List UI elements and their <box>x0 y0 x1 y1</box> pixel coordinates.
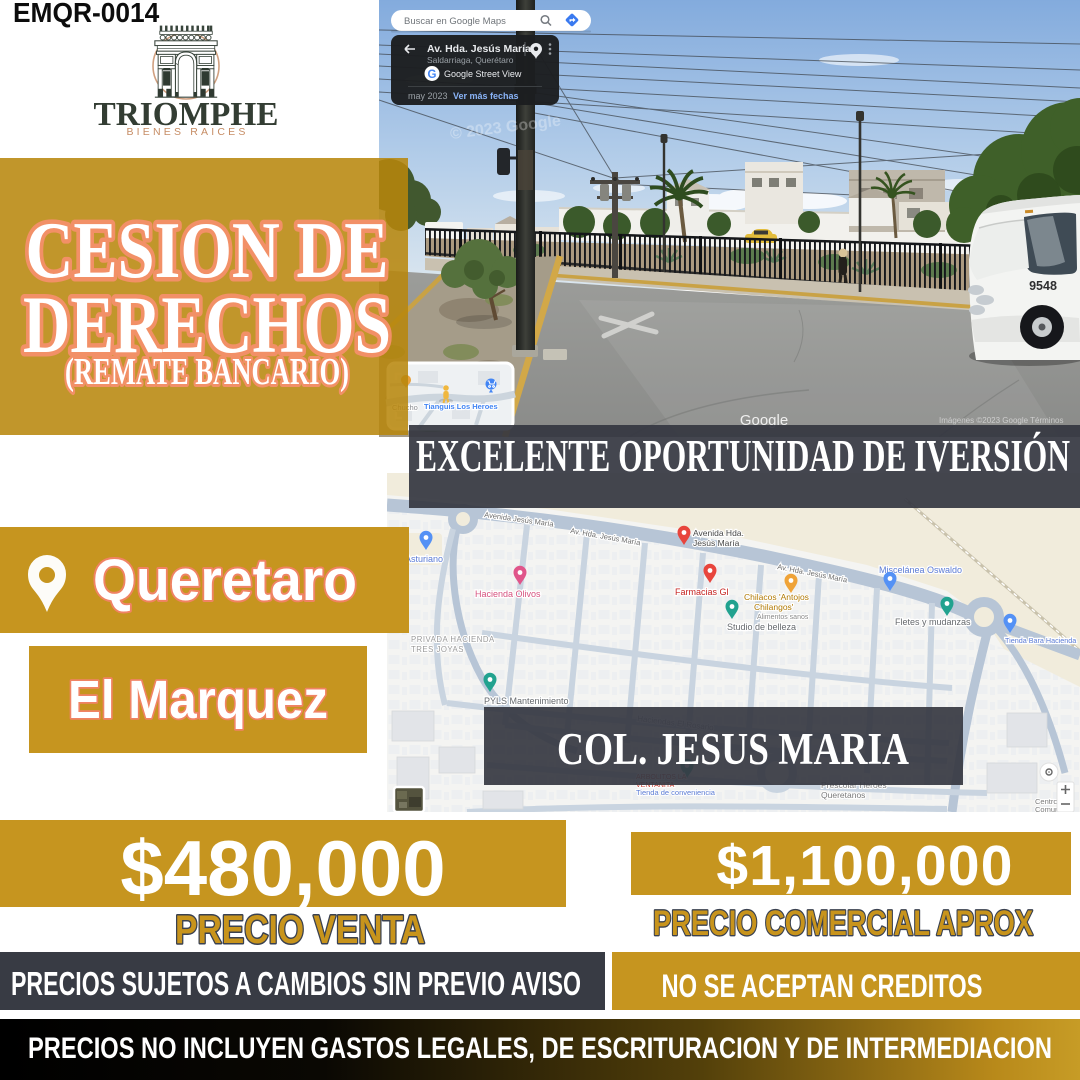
svg-text:Queretanos: Queretanos <box>821 790 865 800</box>
svg-text:Chilangos': Chilangos' <box>754 602 794 612</box>
svg-text:EXCELENTE OPORTUNIDAD DE IVERS: EXCELENTE OPORTUNIDAD DE IVERSIÓN <box>416 431 1070 481</box>
svg-text:COL. JESUS MARIA: COL. JESUS MARIA <box>557 724 909 774</box>
svg-text:Av. Hda. Jesús María: Av. Hda. Jesús María <box>427 43 531 55</box>
svg-text:NO SE ACEPTAN CREDITOS: NO SE ACEPTAN CREDITOS <box>662 968 983 1004</box>
svg-text:Farmacias Gl: Farmacias Gl <box>675 587 729 597</box>
svg-text:(REMATE BANCARIO): (REMATE BANCARIO) <box>65 351 349 393</box>
svg-text:Tienda Bara Hacienda: Tienda Bara Hacienda <box>1005 636 1076 645</box>
svg-text:Imágenes ©2023 Google Términ: Imágenes ©2023 Google Términos <box>939 416 1063 425</box>
svg-text:Fletes y mudanzas: Fletes y mudanzas <box>895 617 971 627</box>
svg-text:Chilacos 'Antojos: Chilacos 'Antojos <box>744 592 809 602</box>
svg-text:PRECIOS SUJETOS A CAMBIOS SIN: PRECIOS SUJETOS A CAMBIOS SIN PREVIO AVI… <box>11 965 581 1002</box>
svg-text:Hacienda Olivos: Hacienda Olivos <box>475 589 541 599</box>
svg-text:Queretaro: Queretaro <box>93 548 357 613</box>
svg-text:Studio de belleza: Studio de belleza <box>727 622 796 632</box>
svg-text:9548: 9548 <box>1029 279 1057 293</box>
svg-text:Asturiano: Asturiano <box>405 554 443 564</box>
svg-text:may 2023: may 2023 <box>408 91 448 101</box>
svg-text:PYLS Mantenimiento: PYLS Mantenimiento <box>484 696 569 706</box>
svg-text:Tienda de conveniencia: Tienda de conveniencia <box>636 788 716 797</box>
svg-text:PRIVADA HACIENDA: PRIVADA HACIENDA <box>411 635 495 644</box>
svg-text:Tianguis Los Heroes: Tianguis Los Heroes <box>424 402 498 411</box>
svg-text:Ver más fechas: Ver más fechas <box>453 91 519 101</box>
svg-text:Jesús María: Jesús María <box>693 538 740 548</box>
svg-text:TRES JOYAS: TRES JOYAS <box>411 645 464 654</box>
svg-text:Google Street View: Google Street View <box>444 69 522 79</box>
svg-text:Buscar en Google Maps: Buscar en Google Maps <box>404 16 506 27</box>
svg-text:Avenida Hda.: Avenida Hda. <box>693 528 744 538</box>
svg-text:PRECIO VENTA: PRECIO VENTA <box>175 908 425 949</box>
svg-text:PRECIO COMERCIAL APROX: PRECIO COMERCIAL APROX <box>653 904 1034 940</box>
svg-text:Alimentos sanos: Alimentos sanos <box>757 614 809 621</box>
svg-text:G: G <box>428 69 437 81</box>
svg-text:Saldarriaga, Querétaro: Saldarriaga, Querétaro <box>427 55 514 65</box>
svg-text:El Marquez: El Marquez <box>68 670 328 730</box>
svg-text:PRECIOS NO INCLUYEN GASTOS LEG: PRECIOS NO INCLUYEN GASTOS LEGALES, DE E… <box>28 1032 1052 1065</box>
